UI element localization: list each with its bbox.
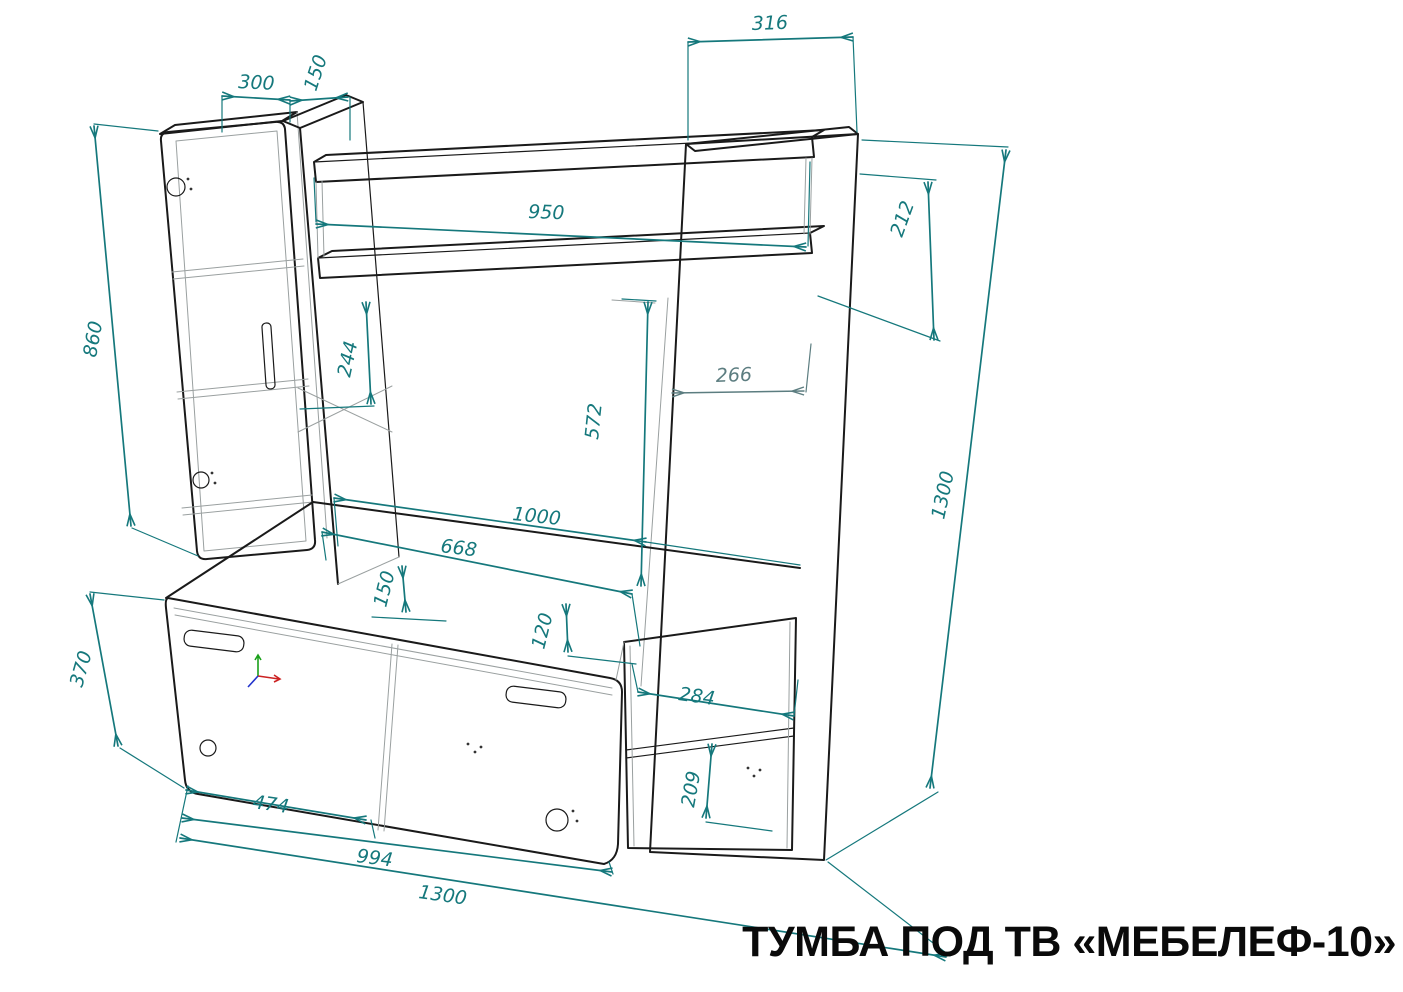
screw-dot (214, 482, 217, 485)
dim-label-370: 370 (66, 648, 97, 689)
ext-line (94, 124, 198, 556)
drawing-title: ТУМБА ПОД ТВ «МЕБЕЛЕФ-10» (742, 918, 1396, 966)
technical-drawing-page: 300 150 316 212 1300 860 (0, 0, 1403, 992)
dim-line (402, 566, 406, 612)
dim-label-572: 572 (581, 402, 607, 440)
dim-label-266: 266 (715, 364, 752, 387)
dim-120: 120 (528, 604, 636, 664)
dim-316: 316 (688, 12, 857, 140)
dim-line (90, 594, 118, 746)
partition-back-edge (363, 102, 399, 557)
screw-dot (576, 820, 579, 823)
dim-label-209: 209 (677, 769, 705, 809)
dim-label-860: 860 (79, 319, 107, 359)
screw-dot (759, 769, 762, 772)
dim-label-474: 474 (251, 791, 290, 818)
screw-dot (474, 751, 477, 754)
dim-line (290, 97, 348, 101)
dim-line (366, 302, 371, 404)
ext-line (90, 592, 184, 788)
dim-label-950: 950 (528, 201, 565, 224)
dim-line (222, 96, 290, 100)
screw-dot (753, 775, 756, 778)
base-cam-lock-right (546, 809, 568, 831)
ext-line (706, 822, 772, 831)
ext-line (806, 344, 811, 392)
ext-line (322, 532, 640, 646)
screw-dot (211, 472, 214, 475)
dim-label-150-mid: 150 (370, 569, 400, 610)
screw-dot (190, 188, 193, 191)
ext-line (372, 617, 446, 621)
dim-line (706, 744, 712, 818)
dim-950: 950 (314, 162, 810, 247)
dim-label-1300-right: 1300 (927, 469, 959, 521)
left-tall-cabinet (160, 112, 327, 559)
dim-label-668: 668 (439, 535, 478, 561)
screw-dot (480, 746, 483, 749)
cabinet-door-handle (262, 323, 276, 389)
base-top-left-edge (166, 502, 313, 598)
axis-x-red (258, 675, 280, 682)
screw-dot (747, 767, 750, 770)
base-door-divider (378, 644, 398, 831)
compartment-opening (624, 618, 796, 850)
dim-label-284: 284 (677, 683, 716, 710)
screw-dot (187, 178, 190, 181)
dim-label-1000: 1000 (511, 503, 561, 530)
base-cam-lock-left (200, 740, 216, 756)
dim-label-300: 300 (238, 71, 275, 95)
middle-shelf-outline (318, 226, 824, 278)
screw-dot (572, 810, 575, 813)
right-door-handle (505, 685, 567, 708)
dim-860: 860 (79, 124, 198, 556)
dim-line (566, 604, 568, 652)
dim-line (316, 224, 806, 247)
left-door-handle (183, 629, 245, 652)
compartment-shelf (626, 728, 794, 758)
middle-shelf-front-top-edge (318, 233, 810, 258)
compartment-inner-edges (616, 622, 790, 848)
dim-label-1300-bottom: 1300 (417, 881, 468, 910)
furniture-drawing (160, 95, 858, 864)
dim-line (334, 498, 646, 542)
dim-line (688, 37, 853, 42)
dim-label-316: 316 (751, 12, 788, 35)
dim-1000: 1000 (334, 498, 800, 565)
middle-wall-shelf (316, 158, 824, 278)
dim-line (930, 150, 1006, 788)
dim-label-212: 212 (886, 198, 919, 240)
cabinet-door-inset (176, 131, 306, 551)
dim-label-150-top: 150 (300, 52, 332, 93)
partition-front-edge (300, 128, 338, 584)
ext-line (688, 37, 857, 140)
furniture-dimension-drawing: 300 150 316 212 1300 860 (0, 0, 1403, 992)
axis-z-blue (248, 676, 258, 687)
dim-209: 209 (677, 744, 772, 831)
dim-266: 266 (672, 344, 811, 393)
dim-370: 370 (66, 592, 184, 788)
niche-inner-edge (641, 298, 668, 686)
dim-line (638, 692, 794, 716)
ext-line (818, 174, 940, 341)
screw-dot (467, 743, 470, 746)
cabinet-hinge-cap-top (167, 178, 185, 196)
ucs-axis-icon (248, 655, 280, 687)
dim-150-mid: 150 (370, 566, 446, 621)
ext-line (568, 656, 636, 664)
dim-line (641, 302, 648, 586)
dim-212: 212 (818, 174, 940, 341)
dim-label-120: 120 (528, 611, 558, 652)
axis-y-green (255, 655, 261, 676)
dim-label-244: 244 (333, 339, 362, 379)
dim-line (928, 182, 934, 340)
cabinet-hinge-cap-bottom (193, 472, 209, 488)
dim-668: 668 (322, 532, 640, 646)
dim-line (672, 391, 804, 393)
